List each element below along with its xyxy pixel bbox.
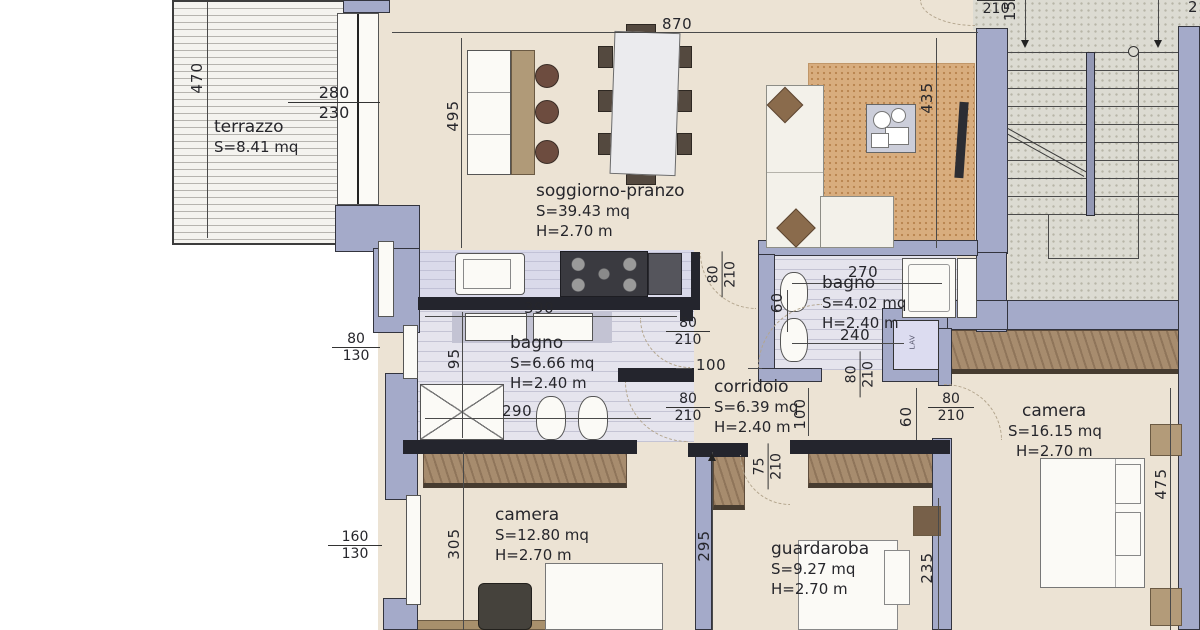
sofa-cushion-line: [767, 172, 823, 173]
wall: [688, 443, 748, 457]
stair-landing-line: [1048, 214, 1049, 258]
wall: [938, 328, 952, 386]
shower-tray: [902, 258, 956, 318]
stool: [535, 64, 559, 88]
dim-495: 495: [444, 100, 462, 132]
dim-60-niche: 60: [897, 406, 915, 427]
wall-niche: [957, 258, 977, 318]
door-size-80-210: 80 210: [845, 351, 878, 397]
dim-entry-210: 210: [977, 0, 1015, 17]
dim-290: 290: [502, 402, 532, 420]
wall: [618, 368, 694, 382]
room-label-terrazzo: terrazzo S=8.41 mq: [214, 116, 298, 158]
bed-pillow: [1115, 464, 1141, 504]
nightstand: [913, 506, 941, 536]
door-size-80-210: 80 210: [928, 392, 974, 425]
terrace-door-size: 280 230: [288, 84, 380, 121]
kitchen-hob: [560, 251, 648, 297]
door-size-75-210: 75 210: [753, 443, 786, 489]
stair-landing-line: [1138, 52, 1139, 258]
wall-kitchen-south: [418, 297, 694, 310]
dim-60: 60: [768, 292, 786, 313]
stair-landing-line: [1048, 258, 1139, 259]
room-label-bagno-grande: bagno S=6.66 mq H=2.40 m: [510, 332, 594, 393]
outside-area: [172, 245, 378, 630]
dining-chair: [677, 133, 692, 155]
coffee-table: [866, 104, 916, 153]
kitchen-oven-module: [648, 253, 682, 295]
dim-line: [207, 2, 208, 238]
wardrobe-camera-piccola: [423, 452, 627, 488]
table-book: [871, 133, 889, 148]
room-label-soggiorno: soggiorno-pranzo S=39.43 mq H=2.70 m: [536, 180, 685, 241]
window-size-80-130: 80 130: [332, 332, 380, 365]
sideboard-shelf-line: [468, 92, 510, 93]
wall: [385, 373, 418, 500]
room-label-camera-grande: camera S=16.15 mq H=2.70 m: [1008, 400, 1102, 461]
dim-470: 470: [188, 62, 206, 94]
dim-arrow: [708, 453, 716, 461]
dining-chair: [598, 90, 613, 112]
room-label-camera-piccola: camera S=12.80 mq H=2.70 m: [495, 504, 589, 565]
stair-arrow-stem: [1158, 0, 1159, 40]
dim-870: 870: [662, 15, 692, 33]
wall-stair-bottom: [1007, 300, 1186, 330]
sofa-seat: [820, 196, 894, 248]
floor-plan: LAV: [0, 0, 1200, 630]
window: [378, 241, 394, 317]
dim-100: 100: [696, 356, 726, 374]
dim-fragment: 2: [1188, 0, 1198, 16]
dim-line: [463, 452, 464, 630]
dim-line: [461, 38, 462, 248]
stair-arrow-stem: [1025, 0, 1026, 40]
dim-line: [462, 312, 463, 438]
dim-line: [916, 388, 917, 440]
nightstand: [1150, 588, 1182, 626]
sink-basin: [463, 259, 511, 289]
wall: [343, 0, 390, 13]
dim-475: 475: [1152, 468, 1170, 500]
room-label-corridoio: corridoio S=6.39 mq H=2.40 m: [714, 376, 798, 437]
dim-95: 95: [445, 348, 463, 369]
bed: [545, 563, 663, 630]
dining-table: [610, 31, 681, 176]
room-label-bagno-piccolo: bagno S=4.02 mq H=2.40 m: [822, 272, 906, 333]
dim-line: [425, 418, 651, 419]
stair-handrail-marker: [1128, 46, 1139, 57]
door-size-80-210: 80 210: [707, 251, 740, 297]
dim-295: 295: [695, 530, 713, 562]
washer-label: LAV: [908, 335, 916, 350]
dim-line: [787, 290, 788, 332]
stool: [535, 100, 559, 124]
armchair: [478, 583, 532, 630]
dim-390: 390: [524, 299, 554, 317]
table-lamp: [891, 108, 906, 123]
shower-inner: [908, 264, 950, 312]
wardrobe-camera-grande: [950, 330, 1180, 374]
door-size-80-210: 80 210: [666, 316, 710, 349]
bed-pillow: [884, 550, 910, 605]
sideboard: [467, 50, 511, 175]
door-size-80-210: 80 210: [666, 392, 710, 425]
nightstand: [1150, 424, 1182, 456]
dim-line: [676, 368, 692, 369]
dining-chair: [598, 46, 613, 68]
window-160x130: [406, 495, 421, 605]
sideboard-top: [511, 50, 535, 175]
dim-435: 435: [918, 82, 936, 114]
dim-line: [1170, 388, 1171, 630]
wall-right-exterior: [1178, 26, 1200, 630]
kitchen-sink: [455, 253, 525, 295]
stool: [535, 140, 559, 164]
wall-guardaroba-north: [790, 440, 950, 454]
window-size-160-130: 160 130: [328, 530, 382, 563]
wall-stair-left: [976, 28, 1008, 254]
room-label-guardaroba: guardaroba S=9.27 mq H=2.70 m: [771, 538, 869, 599]
dim-line: [936, 38, 937, 248]
dim-305: 305: [445, 528, 463, 560]
bed-pillow: [1115, 512, 1141, 556]
dim-line: [938, 498, 939, 630]
window-80x130: [403, 325, 418, 379]
dim-235: 235: [918, 552, 936, 584]
dining-chair: [677, 90, 692, 112]
stair-down-arrow: [1154, 40, 1162, 48]
stair-divider-wall: [1086, 52, 1095, 216]
stair-down-arrow: [1021, 40, 1029, 48]
wall-bath-large-south: [403, 440, 637, 454]
dim-line: [748, 368, 762, 369]
sideboard-shelf-line: [468, 134, 510, 135]
